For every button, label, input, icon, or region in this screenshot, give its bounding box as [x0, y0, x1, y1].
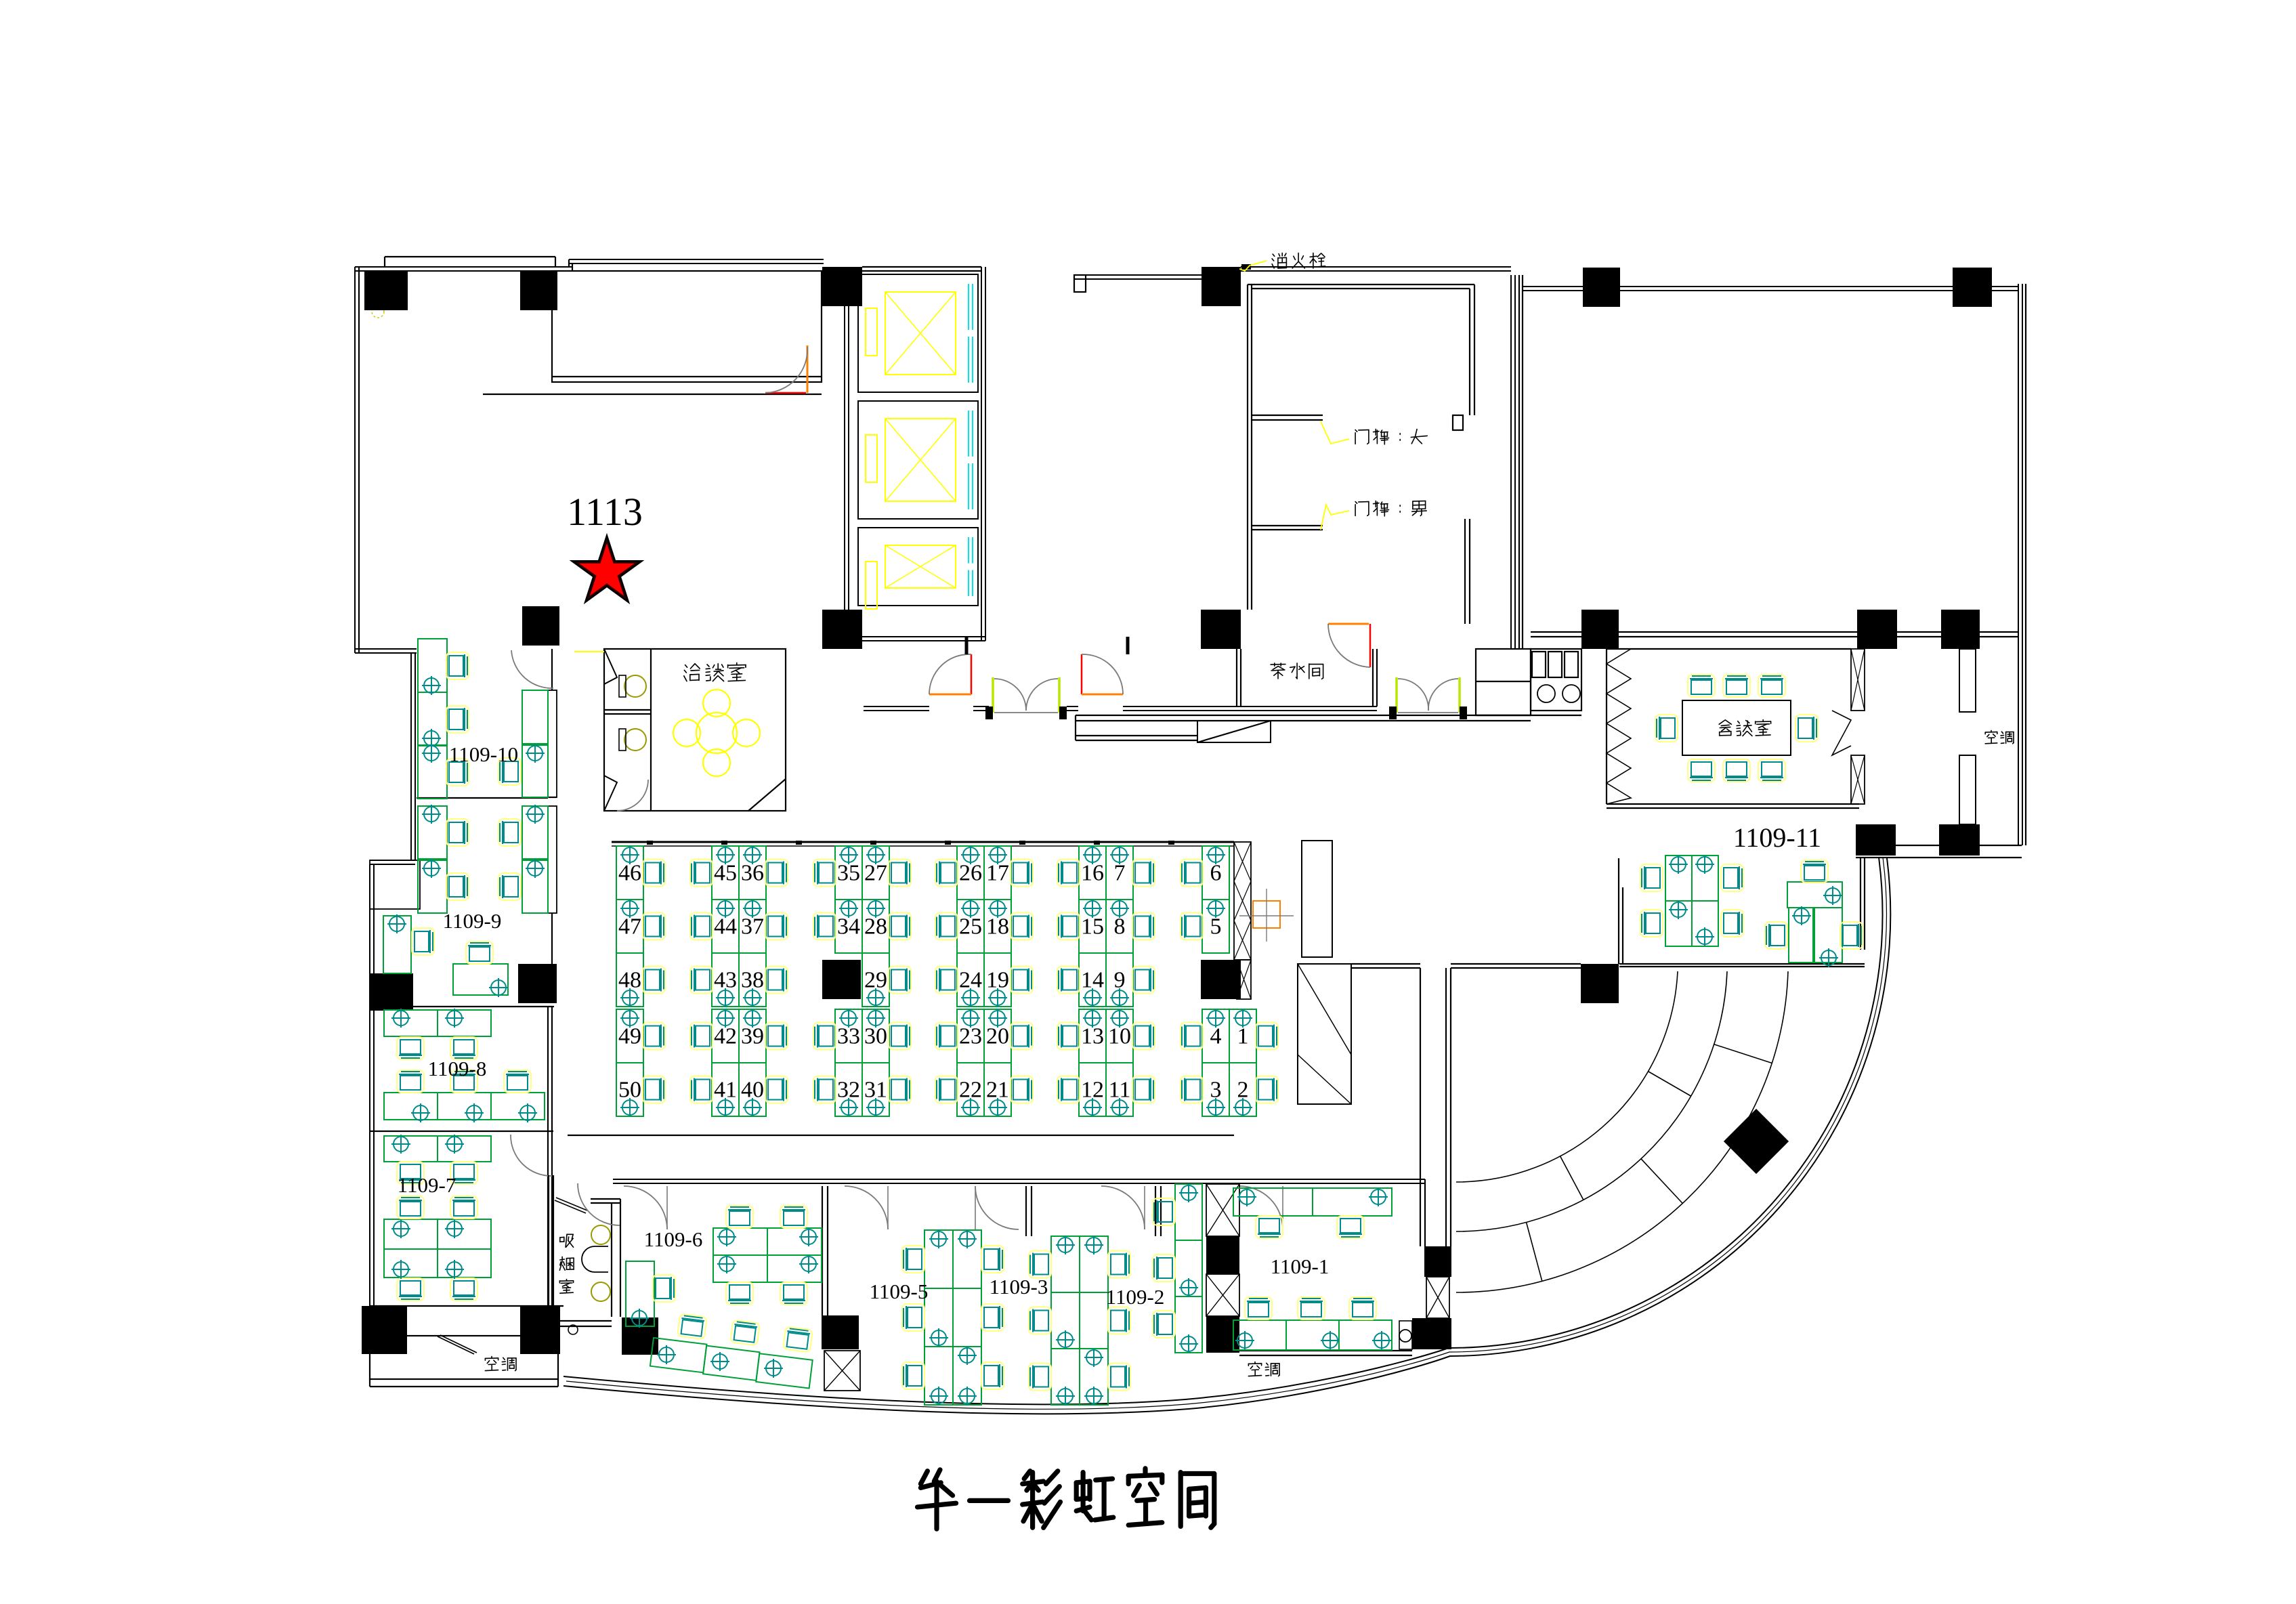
svg-text:1113: 1113 [567, 490, 643, 534]
svg-text:5: 5 [1210, 914, 1222, 940]
svg-text:34: 34 [837, 914, 860, 940]
svg-text:46: 46 [618, 861, 641, 886]
svg-text:45: 45 [714, 861, 737, 886]
svg-text:8: 8 [1114, 914, 1126, 940]
svg-text:33: 33 [837, 1024, 860, 1049]
svg-text:30: 30 [864, 1024, 887, 1049]
svg-text:4: 4 [1210, 1024, 1222, 1049]
svg-text:20: 20 [986, 1024, 1009, 1049]
svg-text:27: 27 [864, 861, 887, 886]
svg-text:7: 7 [1114, 861, 1126, 886]
svg-text:1109-8: 1109-8 [428, 1057, 487, 1080]
svg-text:16: 16 [1081, 861, 1104, 886]
svg-text:36: 36 [741, 861, 764, 886]
svg-text:1109-5: 1109-5 [870, 1280, 929, 1303]
svg-text:37: 37 [741, 914, 764, 940]
svg-text:1109-3: 1109-3 [990, 1275, 1048, 1299]
svg-text:10: 10 [1108, 1024, 1131, 1049]
svg-text:1109-2: 1109-2 [1106, 1285, 1165, 1309]
svg-text:1: 1 [1237, 1024, 1249, 1049]
svg-text:35: 35 [837, 861, 860, 886]
svg-text:44: 44 [714, 914, 737, 940]
svg-text:6: 6 [1210, 861, 1222, 886]
svg-text:28: 28 [864, 914, 887, 940]
svg-text:42: 42 [714, 1024, 737, 1049]
svg-text:1109-10: 1109-10 [449, 742, 518, 766]
svg-text:18: 18 [986, 914, 1009, 940]
svg-text:1109-11: 1109-11 [1733, 822, 1821, 853]
svg-text:1109-6: 1109-6 [644, 1227, 703, 1251]
svg-text:15: 15 [1081, 914, 1104, 940]
svg-text:1109-7: 1109-7 [398, 1173, 456, 1197]
svg-text:1109-9: 1109-9 [443, 909, 502, 933]
svg-text:26: 26 [959, 861, 982, 886]
svg-text:1109-1: 1109-1 [1271, 1254, 1330, 1278]
svg-text:25: 25 [959, 914, 982, 940]
svg-text:49: 49 [618, 1024, 641, 1049]
svg-text:23: 23 [959, 1024, 982, 1049]
svg-text:39: 39 [741, 1024, 764, 1049]
svg-text:13: 13 [1081, 1024, 1104, 1049]
svg-text:47: 47 [618, 914, 641, 940]
svg-text:17: 17 [986, 861, 1009, 886]
